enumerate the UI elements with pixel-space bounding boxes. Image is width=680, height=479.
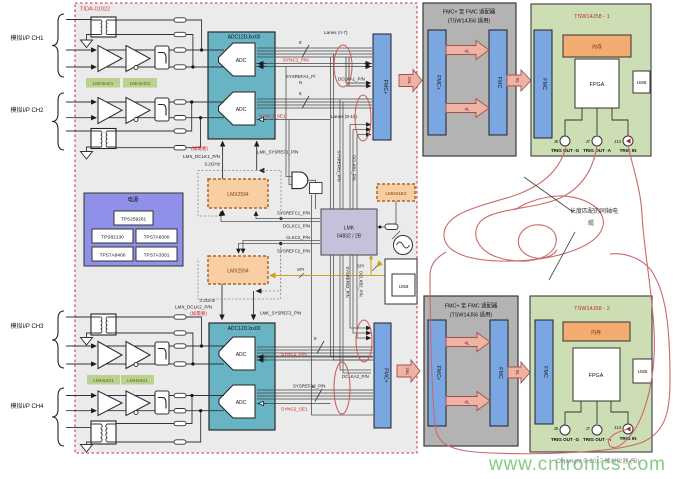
- svg-text:USB: USB: [638, 369, 648, 375]
- svg-text:Copyright © 2017 德州仪器 (TI): Copyright © 2017 德州仪器 (TI): [556, 457, 639, 465]
- svg-text:DCLKB1_P/N: DCLKB1_P/N: [352, 155, 357, 181]
- svg-text:4L: 4L: [464, 107, 470, 113]
- svg-text:FMC: FMC: [496, 77, 502, 89]
- svg-text:USB: USB: [637, 80, 647, 86]
- svg-text:DCLKB2_P/N: DCLKB2_P/N: [359, 271, 364, 297]
- svg-text:3.2GHz: 3.2GHz: [204, 162, 220, 167]
- svg-text:DCLKC1_P/N: DCLKC1_P/N: [283, 224, 310, 229]
- svg-text:LMK_SYSREF2_P/N: LMK_SYSREF2_P/N: [260, 311, 301, 316]
- svg-text:Lanes (0-7): Lanes (0-7): [324, 30, 348, 35]
- svg-text:FMC+: FMC+: [382, 80, 388, 95]
- svg-text:TRIG OUT -G: TRIG OUT -G: [551, 437, 580, 442]
- svg-text:LMK: LMK: [344, 226, 355, 232]
- svg-text:Lanes (8-15): Lanes (8-15): [331, 114, 358, 119]
- svg-text:SYNC1_P/N: SYNC1_P/N: [283, 58, 309, 63]
- svg-text:LMK61E2: LMK61E2: [385, 191, 406, 197]
- svg-text:TPS259261: TPS259261: [121, 217, 147, 223]
- svg-text:SYNC2_SE1: SYNC2_SE1: [281, 407, 308, 412]
- svg-text:长度匹配的同轴电: 长度匹配的同轴电: [570, 207, 618, 215]
- svg-text:SPI: SPI: [297, 267, 304, 272]
- svg-text:4L: 4L: [464, 341, 470, 347]
- svg-text:LMH6401: LMH6401: [127, 378, 148, 384]
- svg-text:FMC: FMC: [542, 366, 548, 378]
- svg-text:LMX_DCLK1_P/N: LMX_DCLK1_P/N: [183, 154, 220, 159]
- svg-text:J8: J8: [554, 426, 559, 431]
- svg-text:SPI: SPI: [357, 264, 364, 269]
- svg-text:TRIG OUT -A: TRIG OUT -A: [583, 437, 612, 442]
- svg-text:LMK_SYSREF1_P/N: LMK_SYSREF1_P/N: [257, 150, 298, 155]
- svg-text:电源: 电源: [127, 196, 139, 204]
- svg-text:ADC: ADC: [236, 58, 247, 64]
- svg-text:LMH5401: LMH5401: [93, 378, 114, 384]
- svg-text:TPS82130: TPS82130: [101, 235, 124, 241]
- svg-text:LMX_DCLK2_P/N: LMX_DCLK2_P/N: [175, 305, 212, 310]
- svg-text:ADC: ADC: [236, 352, 247, 358]
- svg-text:DCLKA1_P/N: DCLKA1_P/N: [338, 77, 365, 82]
- svg-text:(如需要): (如需要): [190, 310, 207, 317]
- svg-text:模拟I/P CH4: 模拟I/P CH4: [11, 402, 45, 410]
- svg-text:8L: 8L: [514, 370, 520, 376]
- svg-text:FPGA: FPGA: [589, 373, 604, 379]
- svg-text:SYSREFB1_P/N: SYSREFB1_P/N: [337, 150, 342, 181]
- svg-text:8L: 8L: [514, 78, 520, 84]
- svg-text:FMC+: FMC+: [383, 368, 389, 383]
- svg-text:模拟I/P CH2: 模拟I/P CH2: [11, 106, 45, 114]
- svg-text:FMC: FMC: [541, 78, 547, 90]
- svg-text:J7: J7: [586, 426, 591, 431]
- svg-text:LMX2594: LMX2594: [227, 269, 249, 275]
- svg-text:LMH6401: LMH6401: [130, 81, 151, 87]
- svg-text:N: N: [299, 80, 302, 85]
- svg-text:SYSREFA2_P/N: SYSREFA2_P/N: [293, 384, 325, 389]
- svg-text:FMC+: FMC+: [435, 366, 441, 381]
- svg-text:(如需要): (如需要): [191, 145, 208, 152]
- svg-text:TPS7A8300: TPS7A8300: [144, 235, 170, 241]
- svg-text:缆: 缆: [588, 219, 594, 227]
- svg-text:16L: 16L: [406, 76, 412, 84]
- svg-text:SYSREFA1_P/: SYSREFA1_P/: [286, 74, 316, 79]
- svg-text:FMC+ 至 FMC 适配器: FMC+ 至 FMC 适配器: [443, 8, 496, 16]
- svg-text:模拟I/P CH3: 模拟I/P CH3: [11, 322, 45, 330]
- svg-text:FMC+ 至 FMC 适配器: FMC+ 至 FMC 适配器: [445, 302, 498, 310]
- svg-text:(TSW14J56 适用): (TSW14J56 适用): [448, 17, 491, 25]
- svg-text:TPS7A8400: TPS7A8400: [100, 253, 126, 259]
- svg-text:SYNC1_SE1: SYNC1_SE1: [259, 114, 286, 119]
- svg-text:4L: 4L: [464, 49, 470, 55]
- svg-text:(TSW14J56 适用): (TSW14J56 适用): [450, 311, 493, 319]
- svg-text:J8: J8: [554, 139, 559, 144]
- svg-text:16L: 16L: [404, 367, 410, 375]
- svg-text:SYNC2_P/N: SYNC2_P/N: [281, 352, 307, 357]
- svg-text:LMX2594: LMX2594: [227, 192, 249, 198]
- svg-text:SYSREFB2_P/N: SYSREFB2_P/N: [345, 266, 350, 297]
- svg-text:CLKC2_P/N: CLKC2_P/N: [286, 235, 310, 240]
- svg-text:LMH5401: LMH5401: [93, 81, 114, 87]
- svg-text:TSW14J58 - 2: TSW14J58 - 2: [574, 306, 610, 312]
- svg-text:FMC+: FMC+: [435, 75, 441, 90]
- svg-text:TPS7A3301: TPS7A3301: [144, 253, 170, 259]
- svg-text:4L: 4L: [464, 400, 470, 406]
- svg-text:J13: J13: [614, 139, 621, 144]
- svg-text:SYSREFC2_P/N: SYSREFC2_P/N: [277, 249, 310, 254]
- svg-text:模拟I/P CH1: 模拟I/P CH1: [11, 34, 45, 42]
- svg-text:ADC12DJxx00: ADC12DJxx00: [228, 326, 261, 332]
- svg-text:ADC: ADC: [236, 107, 247, 113]
- svg-text:FPGA: FPGA: [590, 82, 605, 88]
- svg-text:TRIG OUT -A: TRIG OUT -A: [583, 148, 612, 153]
- svg-text:内存: 内存: [591, 329, 601, 336]
- svg-text:FMC: FMC: [497, 367, 503, 379]
- svg-text:USB: USB: [399, 284, 409, 290]
- svg-text:ADC12DJxx00: ADC12DJxx00: [228, 35, 261, 41]
- svg-text:SYSREFC1_P/N: SYSREFC1_P/N: [277, 211, 310, 216]
- svg-text:TSW14J58 - 1: TSW14J58 - 1: [574, 14, 610, 20]
- svg-text:DCLKA2_P/N: DCLKA2_P/N: [342, 374, 369, 379]
- svg-text:J7: J7: [586, 139, 591, 144]
- svg-text:TIDA-01022: TIDA-01022: [80, 7, 110, 13]
- svg-text:ADC: ADC: [236, 400, 247, 406]
- svg-text:内存: 内存: [592, 44, 602, 51]
- svg-text:04832 / 2B: 04832 / 2B: [337, 234, 362, 240]
- svg-text:J13: J13: [614, 425, 621, 430]
